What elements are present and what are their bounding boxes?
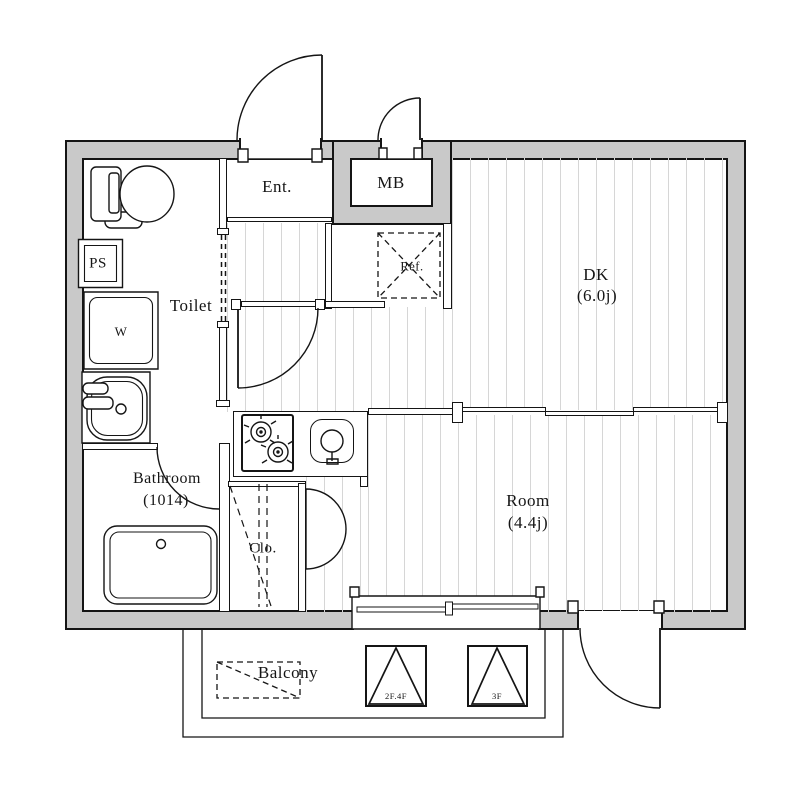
balcony-door <box>568 601 664 708</box>
label-room-size: (4.4j) <box>508 513 548 533</box>
floor-plan: Ent. MB PS W Toilet Ref. DK (6.0j) Room … <box>0 0 800 788</box>
label-dk-size: (6.0j) <box>577 286 617 306</box>
balcony-railing <box>183 629 563 737</box>
closet-folding-door <box>306 489 346 569</box>
label-hatch-lower: 3F <box>492 691 502 701</box>
linework-overlay <box>0 0 800 788</box>
toilet-fixture <box>91 166 174 228</box>
label-bathroom: Bathroom <box>133 470 201 488</box>
label-entrance: Ent. <box>262 177 292 197</box>
washbasin <box>82 372 150 443</box>
bathtub <box>104 526 217 604</box>
label-bathroom-size: (1014) <box>143 492 189 510</box>
label-meter-box: MB <box>377 173 404 193</box>
window <box>350 587 544 629</box>
label-room: Room <box>506 491 550 511</box>
meter-box-door <box>378 98 422 159</box>
label-washer: W <box>115 324 128 340</box>
sink-bowl <box>321 430 343 464</box>
label-toilet: Toilet <box>170 296 212 316</box>
label-fridge: Ref. <box>400 260 423 275</box>
label-pipe-space: PS <box>89 256 107 273</box>
label-hatch-upper: 2F.4F <box>385 691 407 701</box>
stove-burners <box>244 415 293 463</box>
entrance-door <box>237 55 322 162</box>
label-closet: Clo. <box>249 541 276 558</box>
toilet-accordion-door <box>222 235 226 322</box>
kitchen-door <box>238 308 318 388</box>
label-dk: DK <box>583 265 609 285</box>
label-balcony: Balcony <box>258 663 318 683</box>
